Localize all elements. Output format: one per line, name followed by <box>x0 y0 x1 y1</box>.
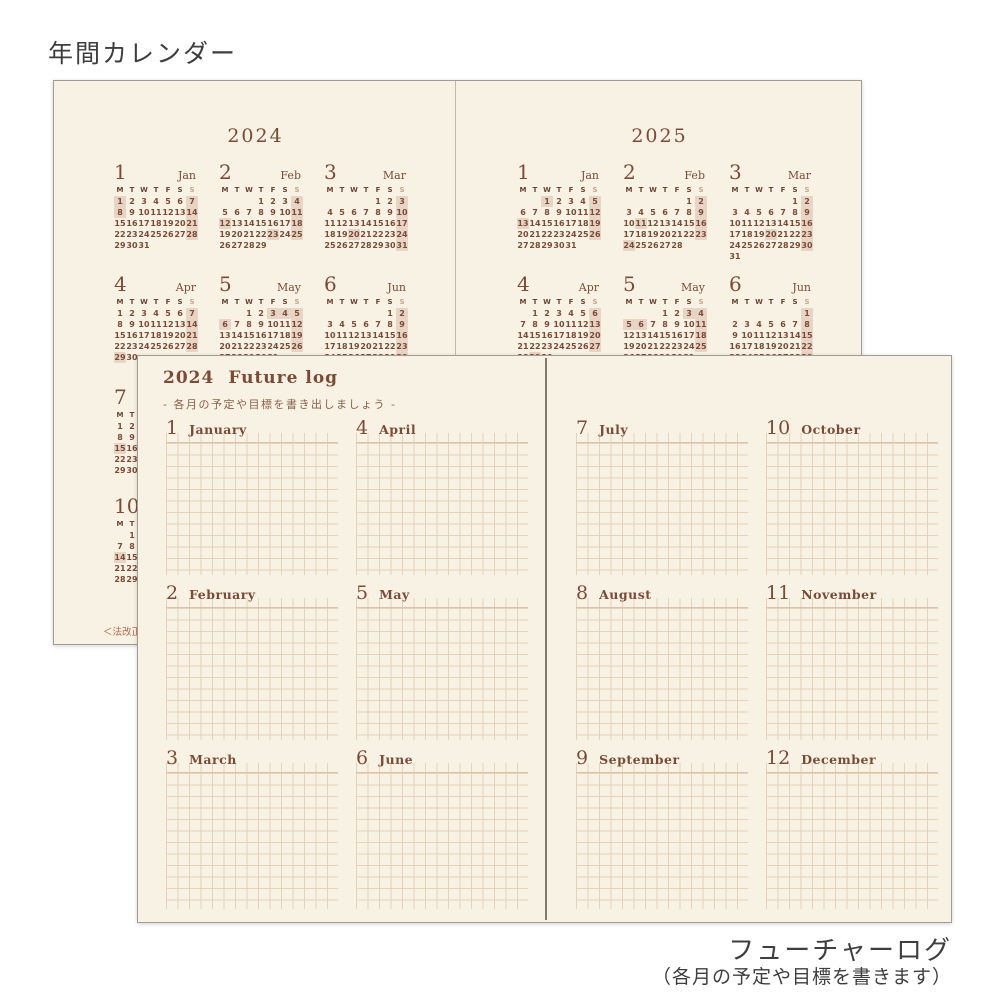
calendar-day: 9 <box>396 319 408 330</box>
calendar-day: 18 <box>695 330 707 341</box>
empty-day-cell <box>635 308 647 319</box>
calendar-day: 11 <box>695 319 707 330</box>
month-number: 4 <box>114 272 127 296</box>
calendar-day: 11 <box>150 319 162 330</box>
mini-month-header: 6Jun <box>729 273 813 297</box>
calendar-day: 23 <box>695 229 707 240</box>
calendar-day: 3 <box>623 207 635 218</box>
month-number: 4 <box>356 417 368 439</box>
calendar-day: 18 <box>150 218 162 229</box>
calendar-day: 4 <box>577 196 589 207</box>
calendar-day: 5 <box>219 207 231 218</box>
weekday-label: S <box>683 185 695 196</box>
calendar-day: 14 <box>671 218 683 229</box>
month-name: May <box>277 281 301 294</box>
calendar-day: 15 <box>541 218 553 229</box>
calendar-day: 19 <box>577 330 589 341</box>
future-log-month-grid <box>166 773 338 909</box>
calendar-day: 4 <box>336 319 348 330</box>
empty-day-cell <box>324 196 336 207</box>
future-log-month-grid <box>356 608 528 740</box>
calendar-day: 12 <box>589 207 601 218</box>
calendar-day: 5 <box>162 196 174 207</box>
calendar-day: 12 <box>291 319 303 330</box>
calendar-day: 16 <box>801 218 813 229</box>
calendar-day: 25 <box>324 240 336 251</box>
calendar-day: 7 <box>186 196 198 207</box>
weekday-label: S <box>384 297 396 308</box>
mini-month-header: 4Apr <box>114 273 198 297</box>
calendar-day: 8 <box>789 207 801 218</box>
future-log-month-1: 1January <box>166 416 338 575</box>
calendar-day: 6 <box>348 207 360 218</box>
calendar-day: 5 <box>753 207 765 218</box>
calendar-day: 17 <box>565 218 577 229</box>
calendar-day: 11 <box>565 319 577 330</box>
weekday-label: W <box>647 185 659 196</box>
calendar-day: 18 <box>279 330 291 341</box>
weekday-label: S <box>174 185 186 196</box>
month-number: 10 <box>766 417 790 439</box>
calendar-day: 24 <box>553 341 565 352</box>
calendar-day: 14 <box>517 330 529 341</box>
calendar-day: 21 <box>186 218 198 229</box>
calendar-day: 22 <box>683 229 695 240</box>
calendar-day: 19 <box>291 330 303 341</box>
weekday-label: F <box>372 185 384 196</box>
future-log-month-8: 8August <box>576 581 748 740</box>
month-name: October <box>801 422 860 437</box>
calendar-day: 27 <box>174 341 186 352</box>
mini-month-2024-6: 6JunMTWTFSS12345678910111213141516171819… <box>324 273 408 363</box>
calendar-day: 17 <box>138 218 150 229</box>
empty-day-cell <box>777 308 789 319</box>
future-log-month-5: 5May <box>356 581 528 740</box>
future-log-month-header: 6June <box>356 746 528 773</box>
weekday-label: W <box>541 297 553 308</box>
empty-day-cell <box>659 196 671 207</box>
weekday-label: S <box>577 185 589 196</box>
calendar-day: 18 <box>324 229 336 240</box>
mini-month-header: 5May <box>219 273 303 297</box>
calendar-day: 31 <box>396 240 408 251</box>
empty-day-cell <box>348 196 360 207</box>
month-number: 6 <box>729 272 742 296</box>
calendar-day: 5 <box>336 207 348 218</box>
calendar-day: 1 <box>801 308 813 319</box>
calendar-day: 22 <box>789 229 801 240</box>
month-number: 2 <box>623 160 636 184</box>
future-log-month-header: 10October <box>766 416 938 443</box>
future-log-month-grid <box>356 773 528 909</box>
future-log-month-12: 12December <box>766 746 938 909</box>
calendar-day: 3 <box>279 196 291 207</box>
calendar-day: 1 <box>255 196 267 207</box>
calendar-day: 12 <box>348 330 360 341</box>
empty-day-cell <box>741 196 753 207</box>
calendar-day: 10 <box>729 218 741 229</box>
weekday-label: W <box>647 297 659 308</box>
calendar-day: 6 <box>174 196 186 207</box>
calendar-day: 9 <box>384 207 396 218</box>
mini-month-grid: MTWTFSS123456789101112131415161718192021… <box>114 297 198 363</box>
empty-day-cell <box>231 308 243 319</box>
calendar-day: 4 <box>324 207 336 218</box>
calendar-day: 14 <box>186 319 198 330</box>
calendar-day: 10 <box>741 330 753 341</box>
future-log-month-7: 7July <box>576 416 748 575</box>
calendar-day: 1 <box>384 308 396 319</box>
calendar-day: 24 <box>267 341 279 352</box>
calendar-day: 8 <box>255 207 267 218</box>
mini-month-grid: MTWTFSS123456789101112131415161718192021… <box>517 185 601 251</box>
calendar-day: 11 <box>753 330 765 341</box>
calendar-day: 29 <box>114 465 126 476</box>
calendar-day: 18 <box>565 330 577 341</box>
calendar-day: 5 <box>291 308 303 319</box>
weekday-label: F <box>267 185 279 196</box>
calendar-day: 16 <box>695 218 707 229</box>
future-log-month-header: 3March <box>166 746 338 773</box>
month-number: 4 <box>517 272 530 296</box>
future-log-month-2: 2February <box>166 581 338 740</box>
calendar-day: 16 <box>126 330 138 341</box>
month-name: Jun <box>387 281 406 294</box>
empty-day-cell <box>243 196 255 207</box>
calendar-day: 10 <box>683 319 695 330</box>
future-log-month-grid <box>576 608 748 740</box>
calendar-day: 3 <box>741 319 753 330</box>
calendar-day: 17 <box>623 229 635 240</box>
calendar-day: 18 <box>741 229 753 240</box>
mini-month-grid: MTWTFSS123456789101112131415161718192021… <box>729 185 813 262</box>
mini-month-grid: MTWTFSS123456789101112131415161718192021… <box>114 185 198 251</box>
weekday-label: M <box>324 185 336 196</box>
future-log-month-grid <box>766 608 938 740</box>
calendar-day: 15 <box>255 218 267 229</box>
empty-day-cell <box>765 196 777 207</box>
calendar-day: 3 <box>683 308 695 319</box>
calendar-day: 11 <box>336 330 348 341</box>
calendar-day: 27 <box>231 240 243 251</box>
weekday-label: W <box>138 297 150 308</box>
month-name: September <box>599 752 679 767</box>
future-log-month-6: 6June <box>356 746 528 909</box>
calendar-day: 28 <box>186 341 198 352</box>
month-number: 9 <box>576 747 588 769</box>
future-log-subtitle: - 各月の予定や目標を書き出しましょう - <box>163 396 396 412</box>
calendar-day: 21 <box>372 341 384 352</box>
weekday-label: W <box>138 185 150 196</box>
empty-day-cell <box>753 196 765 207</box>
empty-day-cell <box>336 196 348 207</box>
calendar-day: 1 <box>114 308 126 319</box>
month-name: Feb <box>684 169 705 182</box>
calendar-day: 20 <box>219 341 231 352</box>
calendar-day: 20 <box>174 218 186 229</box>
calendar-day: 14 <box>529 218 541 229</box>
calendar-day: 6 <box>174 308 186 319</box>
calendar-day: 8 <box>529 319 541 330</box>
calendar-day: 21 <box>789 341 801 352</box>
future-log-title-text: Future log <box>228 368 338 388</box>
mini-month-header: 2Feb <box>219 161 303 185</box>
calendar-day: 29 <box>255 240 267 251</box>
calendar-day: 26 <box>647 240 659 251</box>
month-name: June <box>379 752 413 767</box>
weekday-label: T <box>553 297 565 308</box>
weekday-label: M <box>219 185 231 196</box>
calendar-day: 15 <box>243 330 255 341</box>
calendar-day: 16 <box>541 330 553 341</box>
calendar-day: 27 <box>589 341 601 352</box>
weekday-label: F <box>565 297 577 308</box>
future-log-title-year: 2024 <box>163 368 214 388</box>
calendar-day: 24 <box>729 240 741 251</box>
calendar-day: 3 <box>138 308 150 319</box>
calendar-day: 12 <box>219 218 231 229</box>
calendar-day: 9 <box>267 207 279 218</box>
empty-day-cell <box>789 308 801 319</box>
calendar-day: 3 <box>553 308 565 319</box>
calendar-day: 22 <box>255 229 267 240</box>
future-log-month-9: 9September <box>576 746 748 909</box>
future-log-title: 2024Future log <box>163 368 338 388</box>
calendar-day: 17 <box>729 229 741 240</box>
calendar-day: 21 <box>647 341 659 352</box>
weekday-label: S <box>396 297 408 308</box>
calendar-day: 15 <box>529 330 541 341</box>
calendar-day: 28 <box>243 240 255 251</box>
calendar-day: 10 <box>267 319 279 330</box>
month-name: Mar <box>788 169 811 182</box>
calendar-day: 30 <box>384 240 396 251</box>
calendar-day: 19 <box>348 341 360 352</box>
calendar-day: 14 <box>777 218 789 229</box>
calendar-day: 28 <box>529 240 541 251</box>
mini-month-2024-3: 3MarMTWTFSS12345678910111213141516171819… <box>324 161 408 251</box>
mini-month-header: 3Mar <box>324 161 408 185</box>
calendar-day: 3 <box>729 207 741 218</box>
calendar-day: 31 <box>138 240 150 251</box>
empty-day-cell <box>114 530 126 541</box>
calendar-day: 25 <box>150 229 162 240</box>
calendar-day: 11 <box>635 218 647 229</box>
empty-day-cell <box>729 308 741 319</box>
calendar-day: 8 <box>801 319 813 330</box>
calendar-day: 6 <box>517 207 529 218</box>
weekday-label: F <box>267 297 279 308</box>
calendar-day: 17 <box>396 218 408 229</box>
calendar-day: 22 <box>372 229 384 240</box>
weekday-label: M <box>623 297 635 308</box>
weekday-label: S <box>186 297 198 308</box>
calendar-day: 25 <box>565 341 577 352</box>
calendar-day: 7 <box>529 207 541 218</box>
calendar-day: 29 <box>114 240 126 251</box>
calendar-day: 7 <box>243 207 255 218</box>
empty-day-cell <box>753 308 765 319</box>
weekday-label: W <box>348 185 360 196</box>
calendar-day: 8 <box>114 432 126 443</box>
calendar-day: 26 <box>589 229 601 240</box>
calendar-day: 19 <box>765 341 777 352</box>
month-number: 5 <box>219 272 232 296</box>
weekday-label: M <box>729 297 741 308</box>
month-number: 10 <box>114 494 139 518</box>
calendar-day: 22 <box>114 229 126 240</box>
calendar-day: 18 <box>753 341 765 352</box>
month-name: Apr <box>579 281 599 294</box>
calendar-day: 20 <box>348 229 360 240</box>
month-number: 1 <box>166 417 178 439</box>
month-name: April <box>379 422 416 437</box>
calendar-day: 15 <box>801 330 813 341</box>
weekday-label: T <box>360 297 372 308</box>
calendar-day: 20 <box>765 229 777 240</box>
calendar-day: 15 <box>372 218 384 229</box>
weekday-label: T <box>150 185 162 196</box>
calendar-day: 12 <box>753 218 765 229</box>
calendar-day: 7 <box>186 308 198 319</box>
calendar-day: 22 <box>529 341 541 352</box>
calendar-day: 22 <box>801 341 813 352</box>
empty-day-cell <box>529 196 541 207</box>
weekday-label: S <box>695 297 707 308</box>
calendar-day: 13 <box>360 330 372 341</box>
calendar-day: 10 <box>396 207 408 218</box>
calendar-day: 25 <box>150 341 162 352</box>
holiday-disclaimer: ＜法改正 <box>103 624 141 638</box>
calendar-day: 4 <box>695 308 707 319</box>
mini-month-grid: MTWTFSS123456789101112131415161718192021… <box>219 297 303 363</box>
calendar-day: 2 <box>695 196 707 207</box>
month-number: 3 <box>324 160 337 184</box>
calendar-day: 11 <box>279 319 291 330</box>
calendar-day: 7 <box>789 319 801 330</box>
calendar-day: 10 <box>279 207 291 218</box>
month-name: January <box>189 422 247 437</box>
mini-month-2025-3: 3MarMTWTFSS12345678910111213141516171819… <box>729 161 813 262</box>
calendar-day: 26 <box>336 240 348 251</box>
calendar-day: 4 <box>150 308 162 319</box>
calendar-day: 31 <box>729 251 741 262</box>
calendar-day: 25 <box>635 240 647 251</box>
calendar-day: 18 <box>635 229 647 240</box>
month-number: 1 <box>517 160 530 184</box>
calendar-day: 24 <box>565 229 577 240</box>
calendar-day: 17 <box>741 341 753 352</box>
calendar-day: 10 <box>138 319 150 330</box>
calendar-day: 1 <box>789 196 801 207</box>
weekday-label: S <box>577 297 589 308</box>
weekday-label: S <box>589 297 601 308</box>
mini-month-2024-4: 4AprMTWTFSS12345678910111213141516171819… <box>114 273 198 363</box>
calendar-day: 12 <box>162 319 174 330</box>
calendar-day: 5 <box>765 319 777 330</box>
weekday-label: S <box>589 185 601 196</box>
calendar-day: 7 <box>360 207 372 218</box>
empty-day-cell <box>777 196 789 207</box>
calendar-day: 9 <box>255 319 267 330</box>
calendar-day: 25 <box>291 229 303 240</box>
calendar-day: 24 <box>396 229 408 240</box>
weekday-label: S <box>789 297 801 308</box>
calendar-day: 2 <box>255 308 267 319</box>
calendar-day: 27 <box>348 240 360 251</box>
weekday-label: T <box>231 297 243 308</box>
calendar-day: 24 <box>623 240 635 251</box>
calendar-day: 5 <box>162 308 174 319</box>
calendar-day: 3 <box>138 196 150 207</box>
weekday-label: M <box>219 297 231 308</box>
month-number: 6 <box>356 747 368 769</box>
calendar-day: 7 <box>777 207 789 218</box>
calendar-day: 2 <box>126 196 138 207</box>
calendar-day: 22 <box>541 229 553 240</box>
calendar-day: 14 <box>360 218 372 229</box>
calendar-day: 6 <box>589 308 601 319</box>
calendar-day: 7 <box>231 319 243 330</box>
empty-day-cell <box>219 308 231 319</box>
calendar-day: 18 <box>336 341 348 352</box>
year-title-2025: 2025 <box>458 125 861 147</box>
calendar-day: 23 <box>384 229 396 240</box>
weekday-label: F <box>777 185 789 196</box>
mini-month-header: 6Jun <box>324 273 408 297</box>
calendar-day: 4 <box>291 196 303 207</box>
mini-month-header: 5May <box>623 273 707 297</box>
future-log-month-header: 9September <box>576 746 748 773</box>
future-log-month-3: 3March <box>166 746 338 909</box>
weekday-label: S <box>279 185 291 196</box>
calendar-day: 29 <box>541 240 553 251</box>
month-number: 6 <box>324 272 337 296</box>
weekday-label: M <box>114 410 126 421</box>
calendar-day: 8 <box>683 207 695 218</box>
calendar-day: 11 <box>291 207 303 218</box>
calendar-day: 21 <box>529 229 541 240</box>
future-log-month-grid <box>766 443 938 575</box>
calendar-day: 16 <box>729 341 741 352</box>
mini-month-2025-2: 2FebMTWTFSS12345678910111213141516171819… <box>623 161 707 251</box>
calendar-day: 21 <box>777 229 789 240</box>
weekday-label: T <box>741 297 753 308</box>
calendar-day: 14 <box>647 330 659 341</box>
calendar-day: 26 <box>219 240 231 251</box>
calendar-day: 5 <box>589 196 601 207</box>
weekday-label: W <box>753 185 765 196</box>
calendar-day: 13 <box>659 218 671 229</box>
empty-day-cell <box>372 308 384 319</box>
weekday-label: M <box>517 185 529 196</box>
calendar-day: 23 <box>801 229 813 240</box>
calendar-day: 13 <box>231 218 243 229</box>
calendar-day: 29 <box>114 352 126 363</box>
month-number: 5 <box>356 582 368 604</box>
calendar-day: 8 <box>384 319 396 330</box>
month-name: Jan <box>178 169 196 182</box>
calendar-day: 28 <box>360 240 372 251</box>
month-name: Jan <box>581 169 599 182</box>
calendar-day: 8 <box>114 319 126 330</box>
weekday-label: M <box>623 185 635 196</box>
calendar-day: 24 <box>279 229 291 240</box>
calendar-day: 27 <box>659 240 671 251</box>
calendar-day: 29 <box>372 240 384 251</box>
weekday-label: T <box>360 185 372 196</box>
calendar-day: 29 <box>789 240 801 251</box>
